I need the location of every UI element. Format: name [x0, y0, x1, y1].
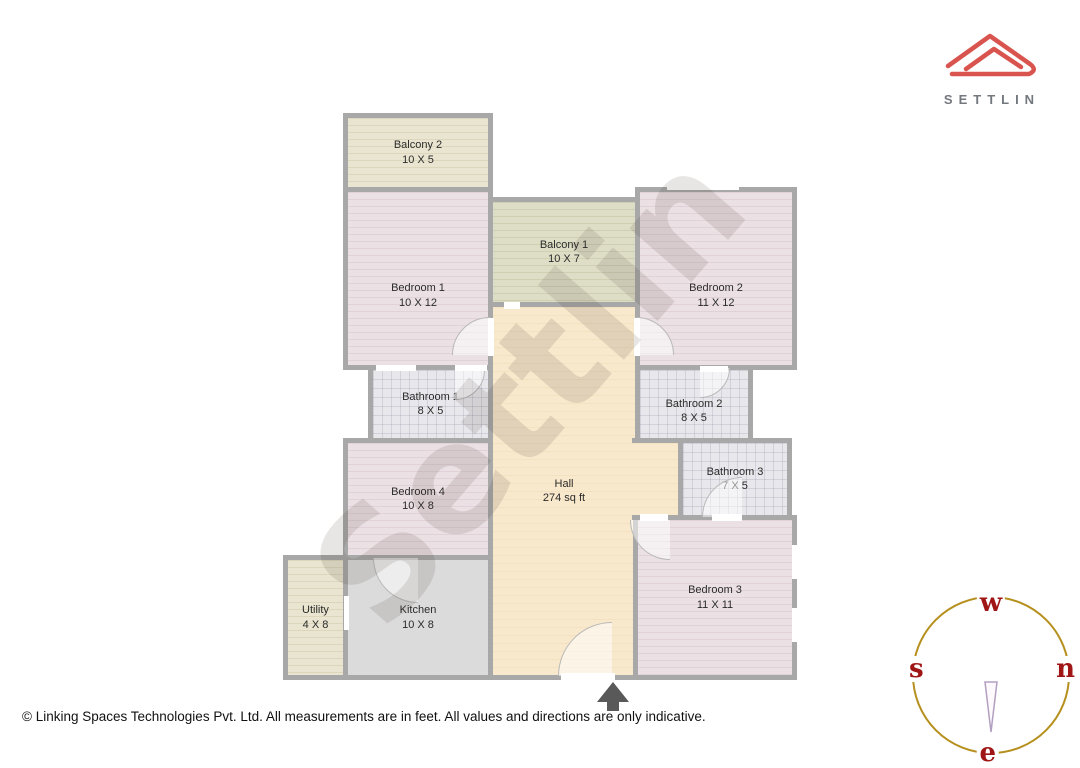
room-balcony-1: Balcony 110 X 7 — [488, 197, 640, 307]
room-label: Hall — [555, 477, 574, 491]
compass-needle-icon — [912, 596, 1070, 754]
room-label: Bathroom 1 — [402, 390, 459, 404]
room-dimensions: 10 X 7 — [548, 252, 580, 266]
room-balcony-2: Balcony 210 X 5 — [343, 113, 493, 192]
wall-opening — [700, 366, 728, 372]
room-dimensions: 10 X 8 — [402, 618, 434, 632]
room-bathroom-2: Bathroom 28 X 5 — [635, 365, 753, 443]
room-dimensions: 11 X 12 — [697, 296, 734, 310]
room-dimensions: 274 sq ft — [543, 491, 585, 505]
room-label: Bedroom 1 — [391, 281, 445, 295]
room-hall: Hall274 sq ft — [488, 302, 640, 680]
entrance-arrow-icon — [597, 682, 629, 712]
room-bedroom-4: Bedroom 410 X 8 — [343, 438, 493, 560]
wall-opening — [488, 318, 494, 356]
wall-opening — [504, 302, 520, 309]
compass-south: s — [906, 656, 927, 682]
wall-opening — [561, 673, 615, 681]
wall-opening — [792, 608, 797, 642]
compass: w s n e — [912, 596, 1070, 754]
room-label: Bathroom 2 — [666, 397, 723, 411]
room-dimensions: 4 X 8 — [303, 618, 329, 632]
wall-opening — [667, 184, 739, 190]
compass-north: n — [1053, 656, 1078, 682]
room-label: Balcony 2 — [394, 138, 442, 152]
room-label: Bedroom 2 — [689, 281, 743, 295]
room-dimensions: 8 X 5 — [418, 404, 444, 418]
room-hall-ext — [632, 438, 683, 520]
room-kitchen: Kitchen10 X 8 — [343, 555, 493, 680]
room-label: Balcony 1 — [540, 238, 588, 252]
wall-opening — [376, 365, 416, 371]
room-label: Kitchen — [400, 603, 437, 617]
room-label: Bedroom 4 — [391, 485, 445, 499]
brand-name: SETTLIN — [928, 92, 1056, 107]
settlin-logo: SETTLIN — [928, 28, 1056, 107]
room-dimensions: 11 X 11 — [697, 598, 733, 612]
room-dimensions: 10 X 12 — [399, 296, 437, 310]
room-utility: Utility4 X 8 — [283, 555, 348, 680]
wall-opening — [634, 318, 640, 356]
entrance-arrow-stem — [607, 701, 619, 711]
room-label: Bedroom 3 — [688, 583, 742, 597]
compass-west: w — [977, 590, 1005, 616]
room-dimensions: 8 X 5 — [681, 411, 707, 425]
room-dimensions: 10 X 8 — [402, 499, 434, 513]
room-label: Utility — [302, 603, 329, 617]
settlin-roof-icon — [942, 28, 1042, 86]
wall-opening — [344, 596, 349, 630]
wall-opening — [792, 545, 797, 579]
room-label: Bathroom 3 — [707, 465, 764, 479]
compass-east: e — [977, 740, 1000, 766]
wall-opening — [712, 514, 742, 521]
room-dimensions: 10 X 5 — [402, 153, 434, 167]
wall-opening — [455, 365, 487, 371]
entrance-arrow-head — [597, 682, 629, 702]
wall-opening — [640, 514, 668, 521]
